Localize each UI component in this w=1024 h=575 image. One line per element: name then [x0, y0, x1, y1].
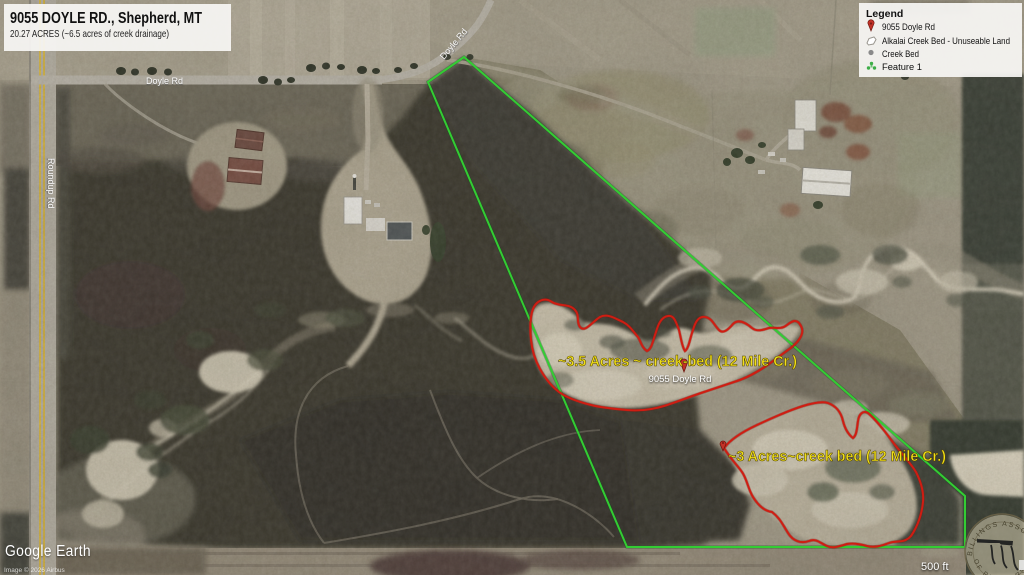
svg-text:Google Earth: Google Earth: [5, 543, 91, 560]
svg-text:Roundup Rd: Roundup Rd: [46, 158, 56, 209]
svg-text:Legend: Legend: [866, 8, 903, 20]
svg-text:500 ft: 500 ft: [921, 561, 949, 573]
svg-text:~3.5 Acres ~ creek-bed (12 Mil: ~3.5 Acres ~ creek-bed (12 Mile Cr.): [558, 353, 797, 370]
svg-text:Feature 1: Feature 1: [882, 62, 922, 72]
svg-text:Creek Bed: Creek Bed: [882, 49, 919, 59]
svg-text:20.27 ACRES (~6.5 acres of cre: 20.27 ACRES (~6.5 acres of creek drainag…: [10, 28, 169, 40]
svg-text:9055 Doyle Rd: 9055 Doyle Rd: [649, 374, 712, 385]
svg-text:Image © 2026 Airbus: Image © 2026 Airbus: [4, 566, 66, 574]
svg-text:9055 DOYLE RD., Shepherd, MT: 9055 DOYLE RD., Shepherd, MT: [10, 10, 202, 27]
svg-text:9055 Doyle Rd: 9055 Doyle Rd: [882, 22, 935, 32]
svg-text:Alkalai Creek Bed - Unuseable: Alkalai Creek Bed - Unuseable Land: [882, 36, 1010, 46]
svg-text:Doyle Rd: Doyle Rd: [146, 76, 183, 86]
svg-text:~3 Acres~creek bed (12 Mile Cr: ~3 Acres~creek bed (12 Mile Cr.): [728, 449, 946, 465]
